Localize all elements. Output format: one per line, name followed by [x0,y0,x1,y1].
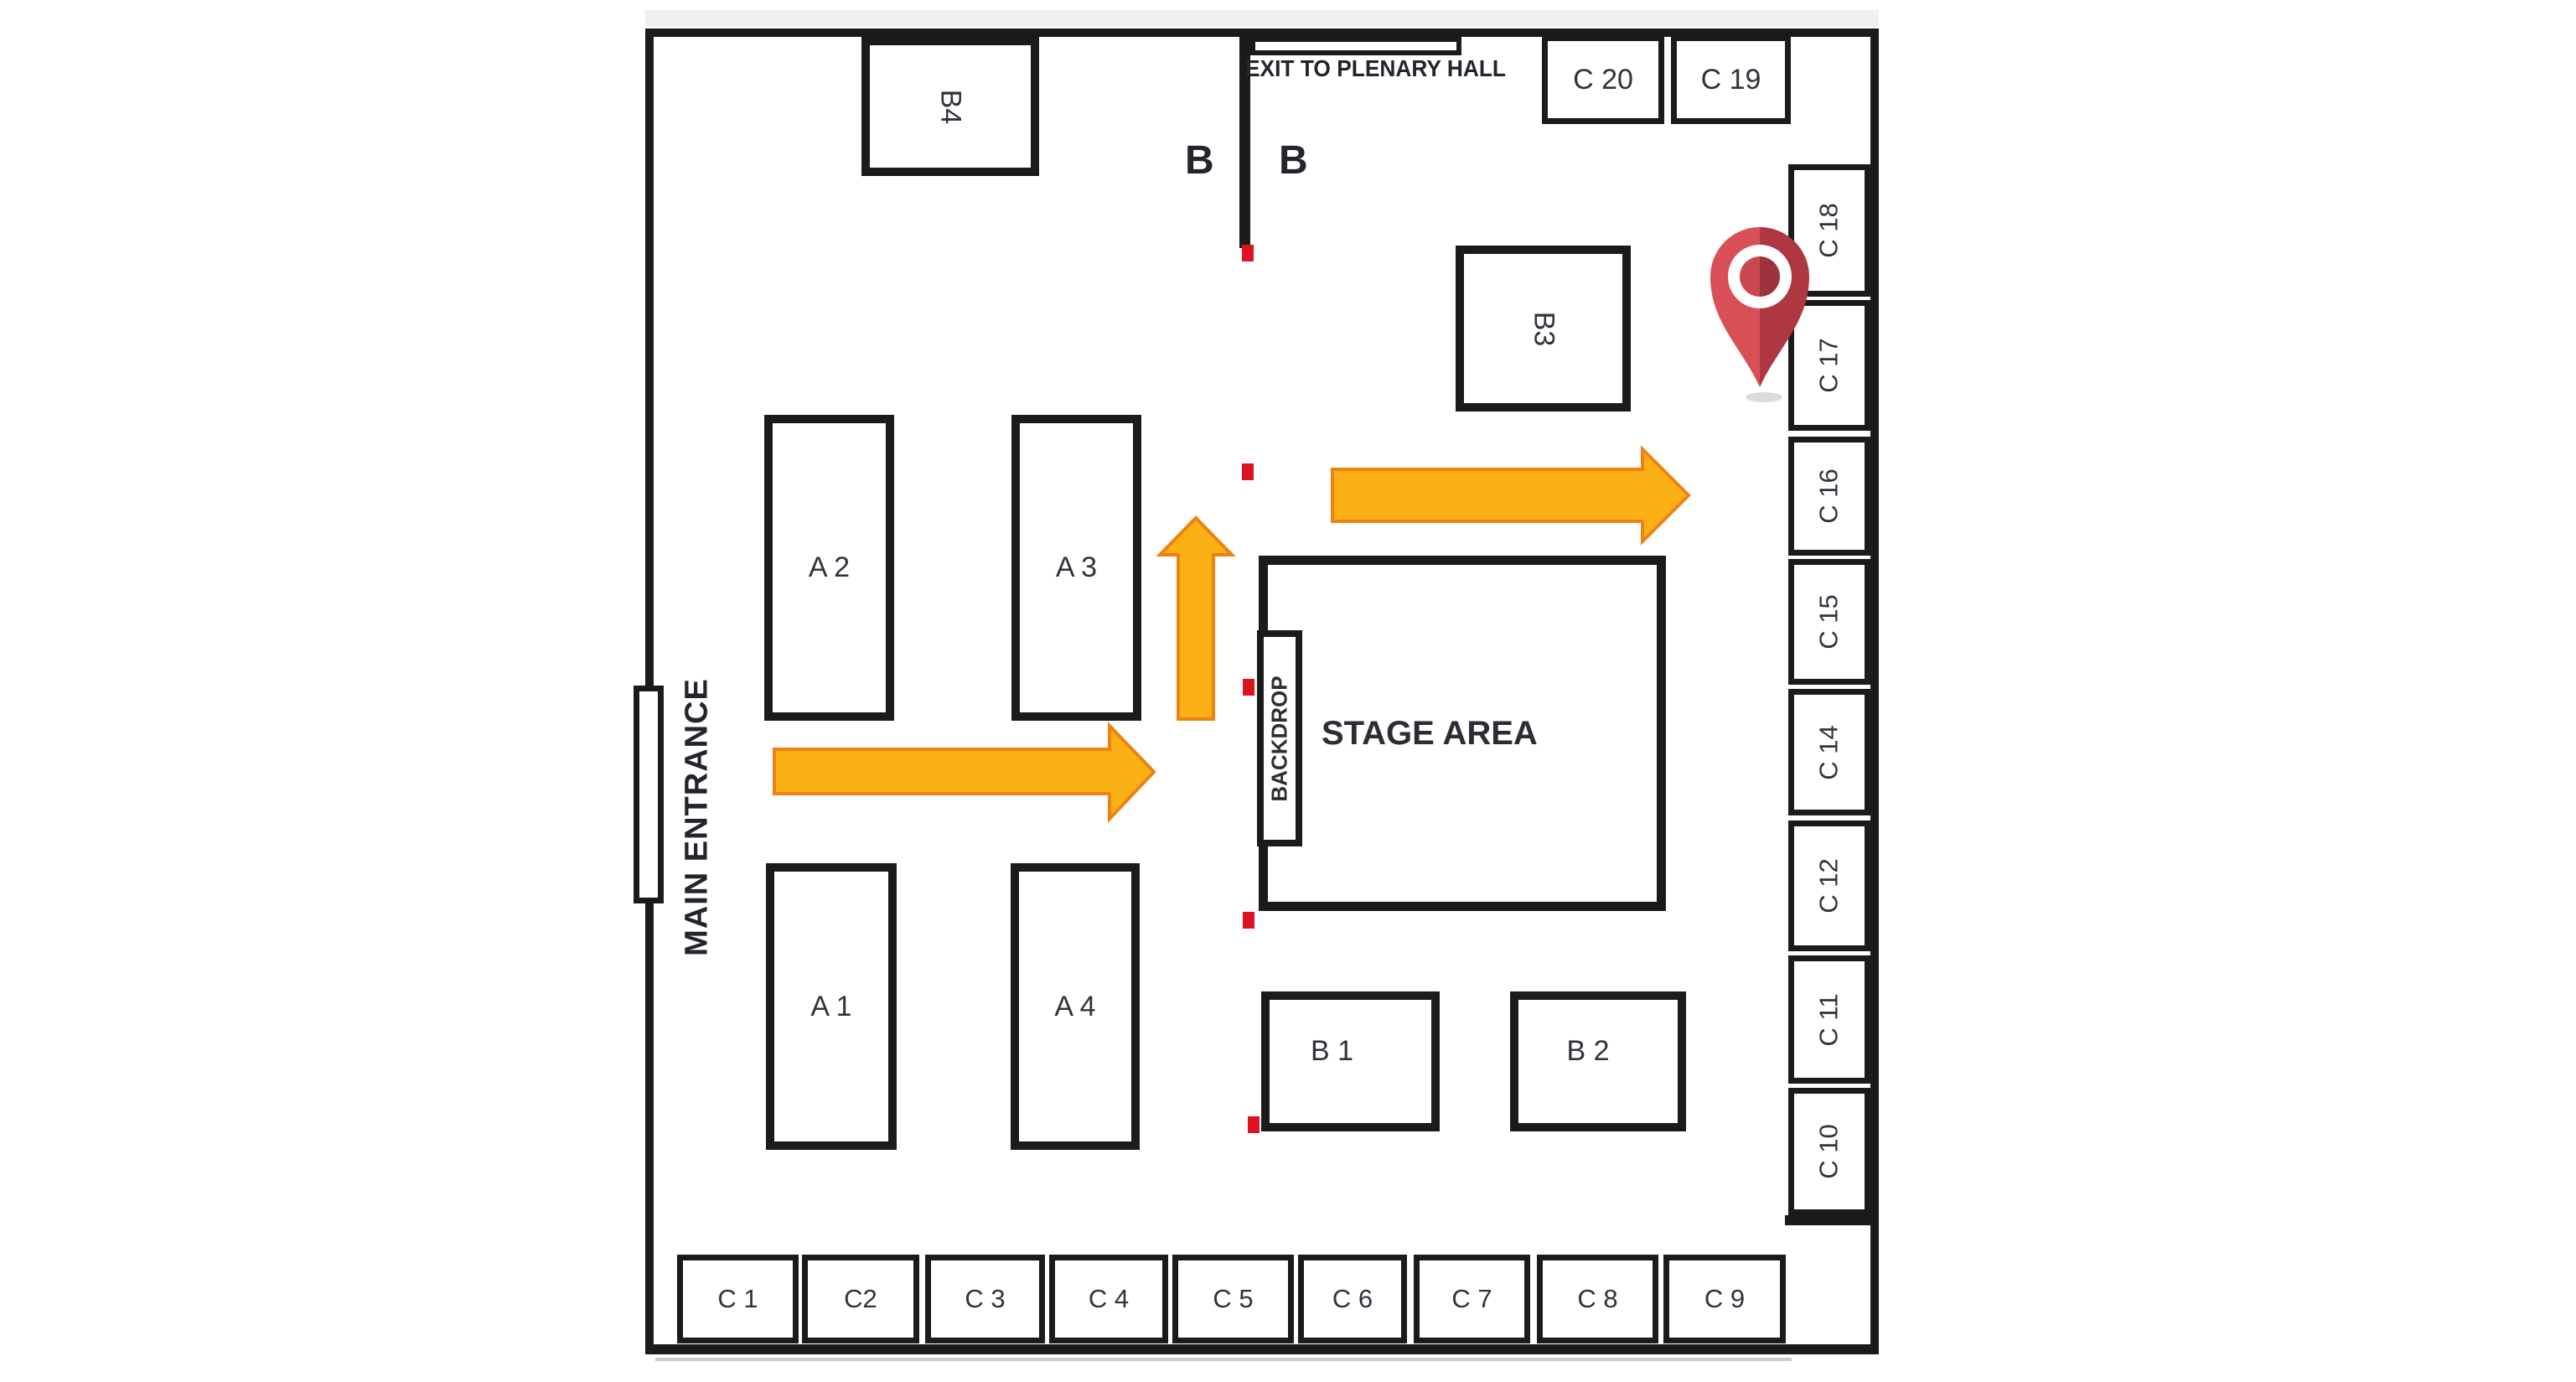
booth-c20-label: C 20 [1573,64,1633,96]
main-entrance-label: MAIN ENTRANCE [680,678,716,956]
booth-c11-label: C 11 [1814,993,1844,1046]
wall-c-column-cap [1785,1215,1879,1225]
booth-c18-label: C 18 [1814,203,1844,257]
booth-c5-label: C 5 [1213,1284,1253,1314]
booth-c10-label: C 10 [1814,1124,1844,1178]
booth-c4: C 4 [1049,1255,1168,1343]
flow-arrow-up [1160,518,1232,719]
booth-c16: C 16 [1788,437,1870,556]
wall-right [1870,28,1879,1354]
booth-a2-label: A 2 [809,551,850,584]
booth-c7: C 7 [1414,1255,1530,1343]
booth-c9: C 9 [1663,1255,1786,1343]
booth-c8-label: C 8 [1577,1284,1617,1314]
booth-c18: C 18 [1788,164,1870,297]
pin-ring [1728,245,1792,308]
booth-c4-label: C 4 [1089,1284,1129,1314]
booth-c1: C 1 [677,1255,799,1343]
booth-c20: C 20 [1542,35,1664,124]
booth-c5: C 5 [1172,1255,1294,1343]
scan-artifact-line [655,1358,1792,1361]
booth-c11: C 11 [1788,955,1870,1084]
booth-c12-label: C 12 [1814,858,1844,913]
stage-area: STAGE AREA [1259,556,1666,911]
booth-a1-label: A 1 [810,991,851,1023]
booth-c6-label: C 6 [1332,1284,1373,1314]
stage-area-label: STAGE AREA [1268,715,1538,753]
booth-b1: B 1 [1261,991,1440,1131]
flow-arrow-right-top [1332,449,1689,541]
booth-b3-label: B3 [1527,311,1560,346]
booth-a3: A 3 [1011,415,1141,721]
floor-plan: EXIT TO PLENARY HALL B B MAIN ENTRANCE A… [0,0,2576,1382]
booth-c19-label: C 19 [1701,64,1761,96]
booth-c19: C 19 [1671,35,1791,124]
booth-c10: C 10 [1788,1088,1870,1215]
booth-c3: C 3 [925,1255,1045,1343]
red-marker-5 [1248,1116,1260,1133]
red-marker-1 [1242,245,1254,261]
booth-b1-label: B 1 [1311,1035,1353,1068]
scan-artifact-strip [645,10,1879,27]
booth-c2-label: C2 [844,1284,877,1314]
booth-b4-label: B4 [934,89,967,124]
booth-c15-label: C 15 [1814,594,1844,649]
zone-b-left-label: B [1185,137,1214,184]
pin-dot [1740,256,1780,297]
booth-c8: C 8 [1537,1255,1658,1343]
backdrop-label: BACKDROP [1267,675,1293,801]
pin-shadow [1746,392,1782,402]
booth-c17-label: C 17 [1814,338,1844,392]
booth-a3-label: A 3 [1056,551,1097,584]
booth-a4-label: A 4 [1054,991,1095,1023]
red-marker-3 [1243,679,1254,696]
booth-a1: A 1 [766,863,897,1150]
zone-b-right-label: B [1279,137,1308,184]
exit-door [1250,37,1461,55]
booth-c14-label: C 14 [1814,725,1844,779]
booth-b2-label: B 2 [1566,1035,1609,1068]
booth-b2: B 2 [1510,991,1686,1131]
booth-c16-label: C 16 [1814,468,1844,523]
main-entrance-door [634,686,664,903]
flow-arrow-right-mid [774,726,1154,819]
booth-c17: C 17 [1788,300,1870,431]
booth-b3: B3 [1456,246,1631,411]
booth-c3-label: C 3 [965,1284,1005,1314]
booth-c15: C 15 [1788,559,1870,685]
booth-c12: C 12 [1788,820,1870,951]
booth-c7-label: C 7 [1451,1284,1492,1314]
red-marker-4 [1243,912,1254,929]
booth-c2: C2 [802,1255,919,1343]
booth-a4: A 4 [1011,863,1140,1150]
backdrop: BACKDROP [1257,630,1302,846]
booth-c1-label: C 1 [717,1284,758,1314]
booth-b4: B4 [861,37,1039,176]
exit-to-plenary-hall-label: EXIT TO PLENARY HALL [1245,55,1506,82]
red-marker-2 [1242,463,1254,480]
booth-a2: A 2 [764,415,894,721]
booth-c9-label: C 9 [1704,1284,1745,1314]
booth-c6: C 6 [1298,1255,1407,1343]
wall-bottom [645,1344,1879,1354]
booth-c14: C 14 [1788,689,1870,815]
